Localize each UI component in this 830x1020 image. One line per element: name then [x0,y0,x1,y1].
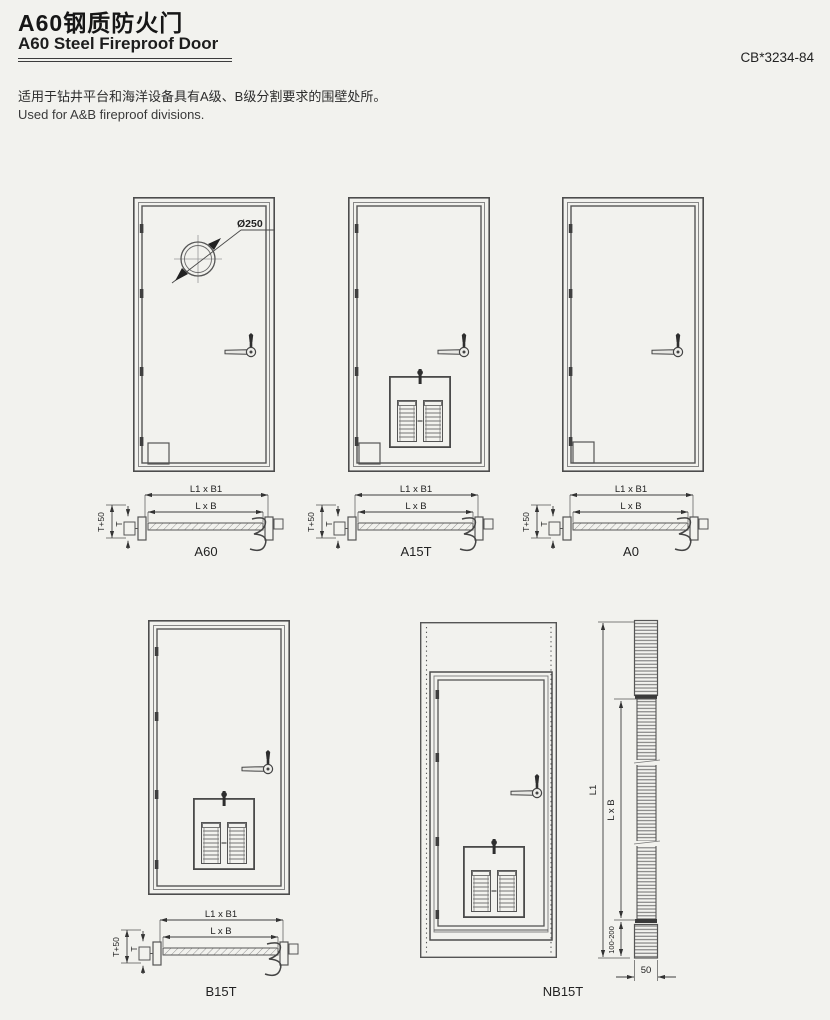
dim-label-clear: L x B [195,501,216,512]
diagram-canvas: Ø250 L1 x B1 L x B T+50 T A60 L1 x B1 L [0,0,830,1020]
dim-label-t: T [114,521,124,526]
door-handle-icon [225,333,256,357]
dim-label-clear: L x B [210,926,231,937]
door-label-a60: A60 [194,544,217,559]
section-a0: L1 x B1 L x B T+50 T A0 [521,484,708,559]
dim-label-clear: L x B [620,501,641,512]
door-label-a15t: A15T [400,544,431,559]
dim-label-t50: T+50 [111,937,121,957]
dim-label-clear: L x B [405,501,426,512]
door-a60-elevation: Ø250 [134,198,275,471]
section-a60: L1 x B1 L x B T+50 T A60 [96,484,283,559]
dim-label-bottom-clearance: 100-200 [607,926,616,954]
dim-label-lxb-vertical: L x B [606,799,617,820]
dim-label-outer: L1 x B1 [400,484,432,495]
louver-vent [194,791,254,869]
door-label-nb15t: NB15T [543,984,584,999]
dim-label-t50: T+50 [96,512,106,532]
catalog-page: A60钢质防火门 A60 Steel Fireproof Door CB*323… [0,0,830,1020]
dim-label-t: T [324,521,334,526]
dim-label-outer: L1 x B1 [205,909,237,920]
section-a15t: L1 x B1 L x B T+50 T A15T [306,484,493,559]
door-handle-icon [652,333,683,357]
door-nb15t-elevation: NB15T [421,623,584,999]
dim-label-t: T [129,946,139,951]
dim-label-outer: L1 x B1 [615,484,647,495]
porthole: Ø250 [172,218,275,283]
dim-label-t: T [539,521,549,526]
door-a0-elevation [563,198,703,471]
dim-label-l1: L1 [588,785,599,796]
door-handle-icon [438,333,469,357]
section-nb15t-vertical: L1 L x B 100-200 50 [588,621,676,982]
door-b15t-elevation [149,621,289,894]
porthole-dim-label: Ø250 [237,218,263,230]
louver-vent [390,369,450,447]
door-label-a0: A0 [623,544,639,559]
louver-vent [464,839,524,917]
door-label-b15t: B15T [205,984,236,999]
dim-label-t50: T+50 [521,512,531,532]
door-handle-icon [511,774,542,798]
dim-label-outer: L1 x B1 [190,484,222,495]
dim-label-panel-thickness: 50 [641,965,652,976]
dim-label-t50: T+50 [306,512,316,532]
door-a15t-elevation [349,198,489,471]
door-handle-icon [242,750,273,774]
section-b15t: L1 x B1 L x B T+50 T B15T [111,909,298,999]
